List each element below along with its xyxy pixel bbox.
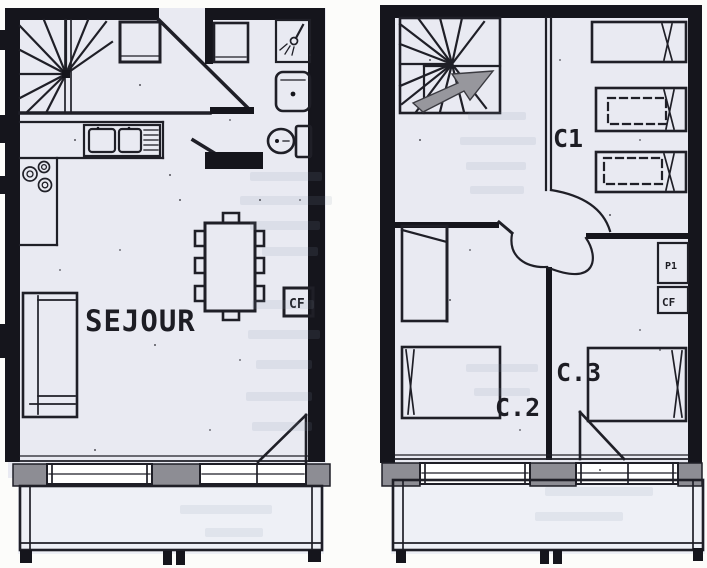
room-label-sejour: SEJOUR xyxy=(85,304,196,338)
floor-plan-scan: CF SEJOUR xyxy=(0,0,707,568)
floor-plan-drawing: CF SEJOUR xyxy=(0,0,707,568)
right-window-band xyxy=(382,455,702,486)
wall-pier xyxy=(678,463,702,486)
balcony-post xyxy=(396,550,406,563)
balcony-post xyxy=(693,548,703,561)
stair-newel xyxy=(62,70,70,78)
room-label-c1: C1 xyxy=(553,124,583,153)
balcony-post xyxy=(20,550,32,563)
right-plan: P1 CF xyxy=(380,5,705,564)
wall-pier xyxy=(530,463,576,486)
cf-box-right-label: CF xyxy=(662,296,675,309)
window xyxy=(200,464,306,484)
p1-box-label: P1 xyxy=(665,261,677,272)
balcony-post xyxy=(163,551,172,565)
left-window-band xyxy=(13,456,330,486)
wall-pier xyxy=(306,464,330,486)
wall-pier xyxy=(13,464,47,486)
wall-pier xyxy=(152,464,200,486)
room-label-c2: C.2 xyxy=(495,393,540,422)
left-plan: CF SEJOUR xyxy=(5,8,330,565)
window xyxy=(47,464,152,484)
room-label-c3: C.3 xyxy=(556,358,601,387)
balcony-post xyxy=(176,551,185,565)
wall-pier xyxy=(382,463,420,486)
balcony-post xyxy=(308,550,321,562)
balcony-post xyxy=(553,550,562,564)
balcony-post xyxy=(540,550,549,564)
